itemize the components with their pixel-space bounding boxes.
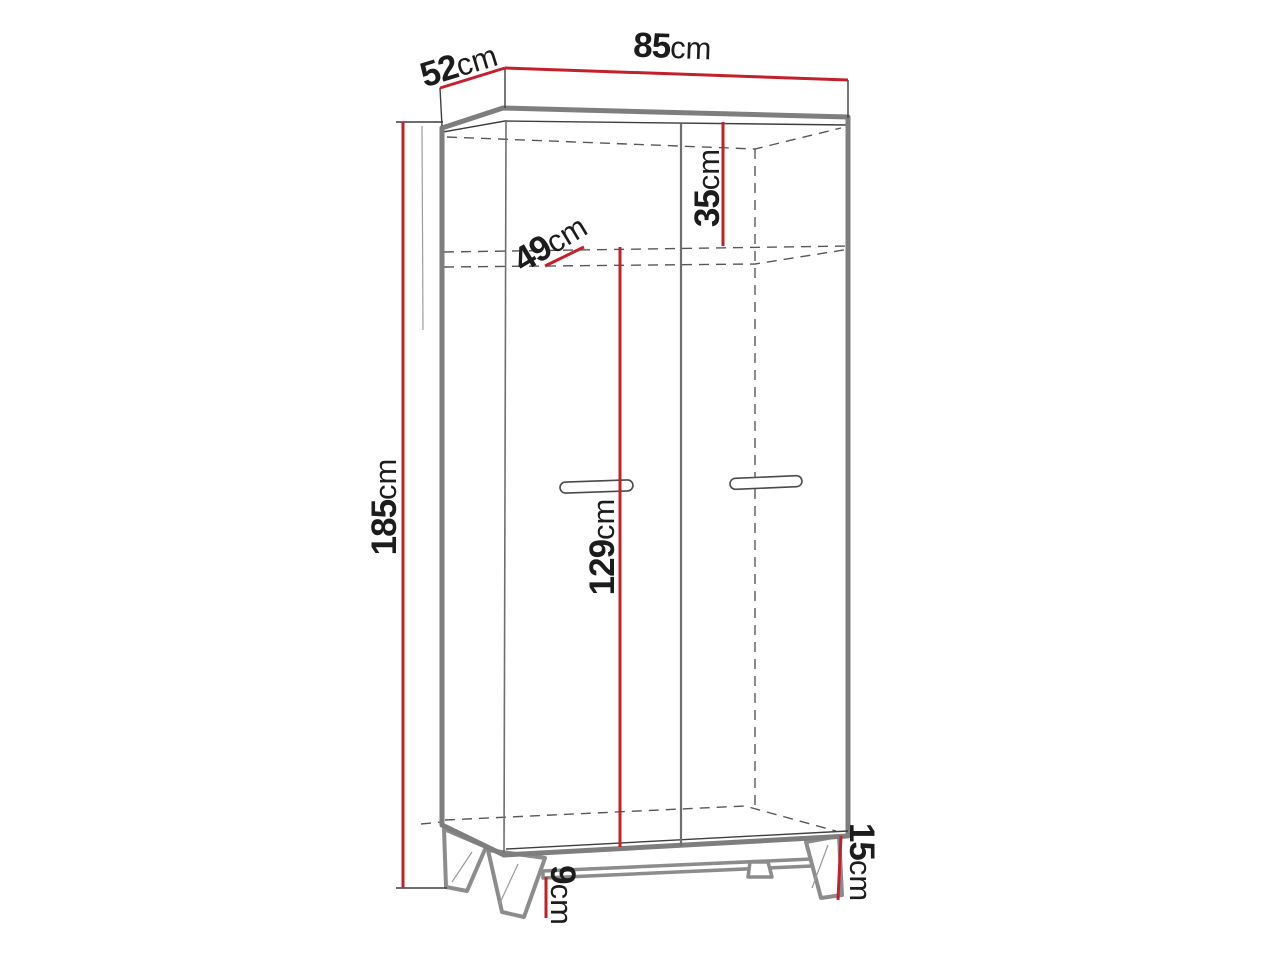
back-right-leg [748, 862, 772, 877]
width-label: 85cm [633, 26, 713, 68]
shelf-depth-label: 49cm [506, 206, 593, 280]
width-dimension-line [505, 68, 848, 80]
top-left-tick [440, 88, 442, 126]
front-left-leg [488, 850, 545, 917]
front-left-corner-edge [504, 122, 506, 853]
front-bottom-edge [504, 836, 848, 855]
shelf-front-edge [444, 246, 848, 252]
left-door-handle [560, 480, 633, 494]
back-left-top-edge [422, 126, 423, 330]
depth-label: 52cm [416, 35, 502, 95]
diagram-canvas: 52cm 85cm 185cm 35cm 49cm 129cm 9cm 15cm [0, 0, 1280, 960]
cabinet-body [422, 108, 848, 855]
wardrobe-dimension-diagram: 52cm 85cm 185cm 35cm 49cm 129cm 9cm 15cm [0, 0, 1280, 960]
leg-height-label: 15cm [842, 823, 881, 901]
top-panel-edge [442, 108, 848, 128]
dimension-lines [403, 68, 848, 918]
floor-clearance-label: 9cm [543, 865, 582, 925]
front-right-leg [806, 836, 842, 898]
right-door-handle [730, 475, 802, 489]
height-label: 185cm [365, 459, 404, 556]
top-compartment-label: 35cm [688, 149, 727, 227]
door-section-label: 129cm [583, 499, 622, 596]
top-panel-underside [443, 121, 848, 132]
